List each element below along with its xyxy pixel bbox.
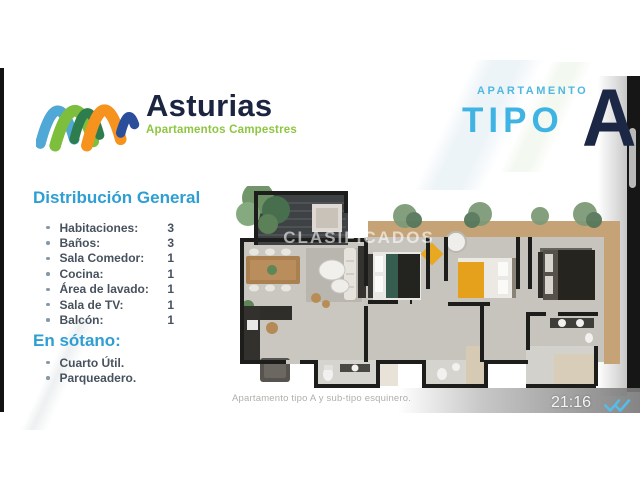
item-label: Parqueadero. xyxy=(60,371,137,385)
list-item: Baños:3 xyxy=(46,235,174,250)
apartment-kicker: APARTAMENTO xyxy=(477,85,588,97)
item-value: 1 xyxy=(167,313,174,327)
item-label: Sala Comedor: xyxy=(60,251,145,265)
brand-name: Asturias xyxy=(146,90,297,121)
floor-plan-image[interactable]: CLASIFICADOS xyxy=(228,186,624,394)
bullet-icon xyxy=(46,272,50,276)
brand-logo-waves-icon xyxy=(36,78,142,152)
floor-plan-caption: Apartamento tipo A y sub-tipo esquinero. xyxy=(232,393,411,404)
message-time: 21:16 xyxy=(551,394,591,412)
watermark-text: CLASIFICADOS xyxy=(283,228,435,247)
item-label: Área de lavado: xyxy=(60,282,149,296)
distribution-list: Habitaciones:3 Baños:3 Sala Comedor:1 Co… xyxy=(46,220,174,328)
bullet-icon xyxy=(46,376,50,380)
bullet-icon xyxy=(46,361,50,365)
floor-plan-drawing: CLASIFICADOS xyxy=(228,186,624,394)
bullet-icon xyxy=(46,226,50,230)
list-item: Cuarto Útil. xyxy=(46,355,174,370)
bullet-icon xyxy=(46,241,50,245)
item-value: 1 xyxy=(167,251,174,265)
item-label: Balcón: xyxy=(60,313,104,327)
item-label: Sala de TV: xyxy=(60,298,124,312)
photo-left-edge xyxy=(0,68,4,412)
apartment-type-letter: A xyxy=(582,80,636,158)
brand-tagline: Apartamentos Campestres xyxy=(146,124,297,136)
double-check-icon xyxy=(604,398,634,413)
list-item: Parqueadero. xyxy=(46,370,174,385)
list-item: Cocina:1 xyxy=(46,266,174,281)
item-label: Habitaciones: xyxy=(60,221,139,235)
item-value: 3 xyxy=(167,236,174,250)
item-value: 3 xyxy=(167,221,174,235)
bullet-icon xyxy=(46,288,50,292)
item-label: Baños: xyxy=(60,236,101,250)
bullet-icon xyxy=(46,257,50,261)
bullet-icon xyxy=(46,318,50,322)
list-item: Área de lavado:1 xyxy=(46,282,174,297)
list-item: Balcón:1 xyxy=(46,312,174,327)
item-label: Cocina: xyxy=(60,267,104,281)
apartment-type-word: TIPO xyxy=(462,101,564,141)
brand-logo: Asturias Apartamentos Campestres xyxy=(36,78,297,152)
list-item: Sala Comedor:1 xyxy=(46,251,174,266)
item-value: 1 xyxy=(167,282,174,296)
item-value: 1 xyxy=(167,298,174,312)
item-value: 1 xyxy=(167,267,174,281)
distribution-heading: Distribución General xyxy=(33,188,200,208)
list-item: Habitaciones:3 xyxy=(46,220,174,235)
basement-list: Cuarto Útil. Parqueadero. xyxy=(46,355,174,386)
bedroom-3 xyxy=(538,248,595,300)
list-item: Sala de TV:1 xyxy=(46,297,174,312)
basement-heading: En sótano: xyxy=(33,331,121,351)
item-label: Cuarto Útil. xyxy=(60,356,125,370)
bullet-icon xyxy=(46,303,50,307)
